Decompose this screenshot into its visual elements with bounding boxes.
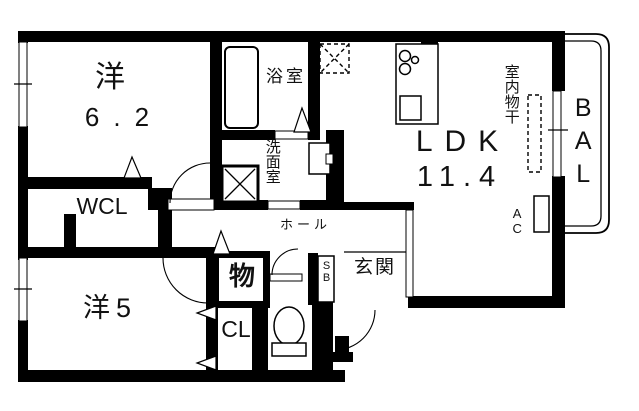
wall-entrance-step — [331, 352, 353, 362]
washroom-label: 洗面室 — [264, 139, 280, 184]
wall-bath-right — [308, 42, 320, 140]
wall-bedroom1-bottom — [18, 177, 152, 189]
wall-right-bottom — [552, 176, 565, 308]
stove-burner — [400, 51, 411, 62]
door-leaf-bedroom1 — [168, 199, 214, 210]
stove-burner — [412, 57, 419, 64]
threshold-washroom — [268, 201, 300, 209]
door-arc-bedroom2 — [163, 258, 208, 303]
toilet-bowl — [274, 307, 304, 345]
wall-wcl-bottom — [18, 247, 218, 258]
kitchen-sink — [400, 96, 421, 120]
floorplan: 洋 6.2 WCL 洋5 浴室 洗面室 ホール 物 CL LDK 11.4 室内… — [0, 0, 639, 411]
hall-label: ホール — [280, 218, 331, 232]
shoebox-label: SB — [320, 260, 332, 284]
door-arc-bedroom1 — [170, 163, 210, 203]
ceiling-storage-cross — [320, 44, 349, 73]
storage-label: 物 — [223, 263, 261, 290]
wall-top — [18, 31, 562, 42]
bath-label: 浴室 — [260, 68, 312, 86]
door-arc-toilet — [272, 249, 298, 275]
door-triangle-wcl — [124, 157, 141, 178]
wall-toilet-right — [312, 300, 333, 375]
balcony-label: BAL — [570, 94, 596, 193]
drying-label: 室内物干 — [503, 64, 519, 124]
ceiling-storage-dashed — [320, 44, 349, 73]
wall-entrance-top — [308, 202, 414, 210]
entrance-label: 玄関 — [348, 258, 402, 278]
washbasin-faucet — [326, 154, 333, 164]
ceiling-storage-cross — [320, 44, 349, 73]
ac-unit — [534, 196, 549, 232]
wall-bath-left — [210, 42, 222, 210]
wall-wcl-stub — [64, 214, 76, 248]
closet-label: CL — [216, 317, 256, 341]
drying-pole-dashed — [528, 95, 541, 172]
wall-left-corner — [18, 31, 28, 43]
wcl-label: WCL — [66, 194, 138, 218]
bathtub — [225, 47, 258, 128]
wall-bottom — [18, 370, 345, 382]
wall-right-top — [552, 31, 565, 91]
door-triangle-storage — [213, 231, 230, 254]
ldk-label: LDK — [408, 126, 518, 158]
window — [553, 91, 561, 177]
wall-shoebox-stub — [308, 253, 318, 305]
threshold-toilet — [270, 274, 302, 281]
toilet-tank — [272, 343, 306, 356]
entrance-step-edge — [406, 210, 413, 297]
wall-left-mid — [18, 126, 28, 260]
ldk-size: 11.4 — [398, 162, 522, 192]
bedroom1-size: 6.2 — [64, 104, 174, 131]
bedroom2-label: 洋5 — [70, 294, 150, 322]
wall-ldk-bottom — [408, 296, 565, 308]
bedroom1-label: 洋 — [84, 62, 136, 94]
stove-burner — [400, 64, 411, 75]
ac-label: AC — [510, 206, 524, 236]
